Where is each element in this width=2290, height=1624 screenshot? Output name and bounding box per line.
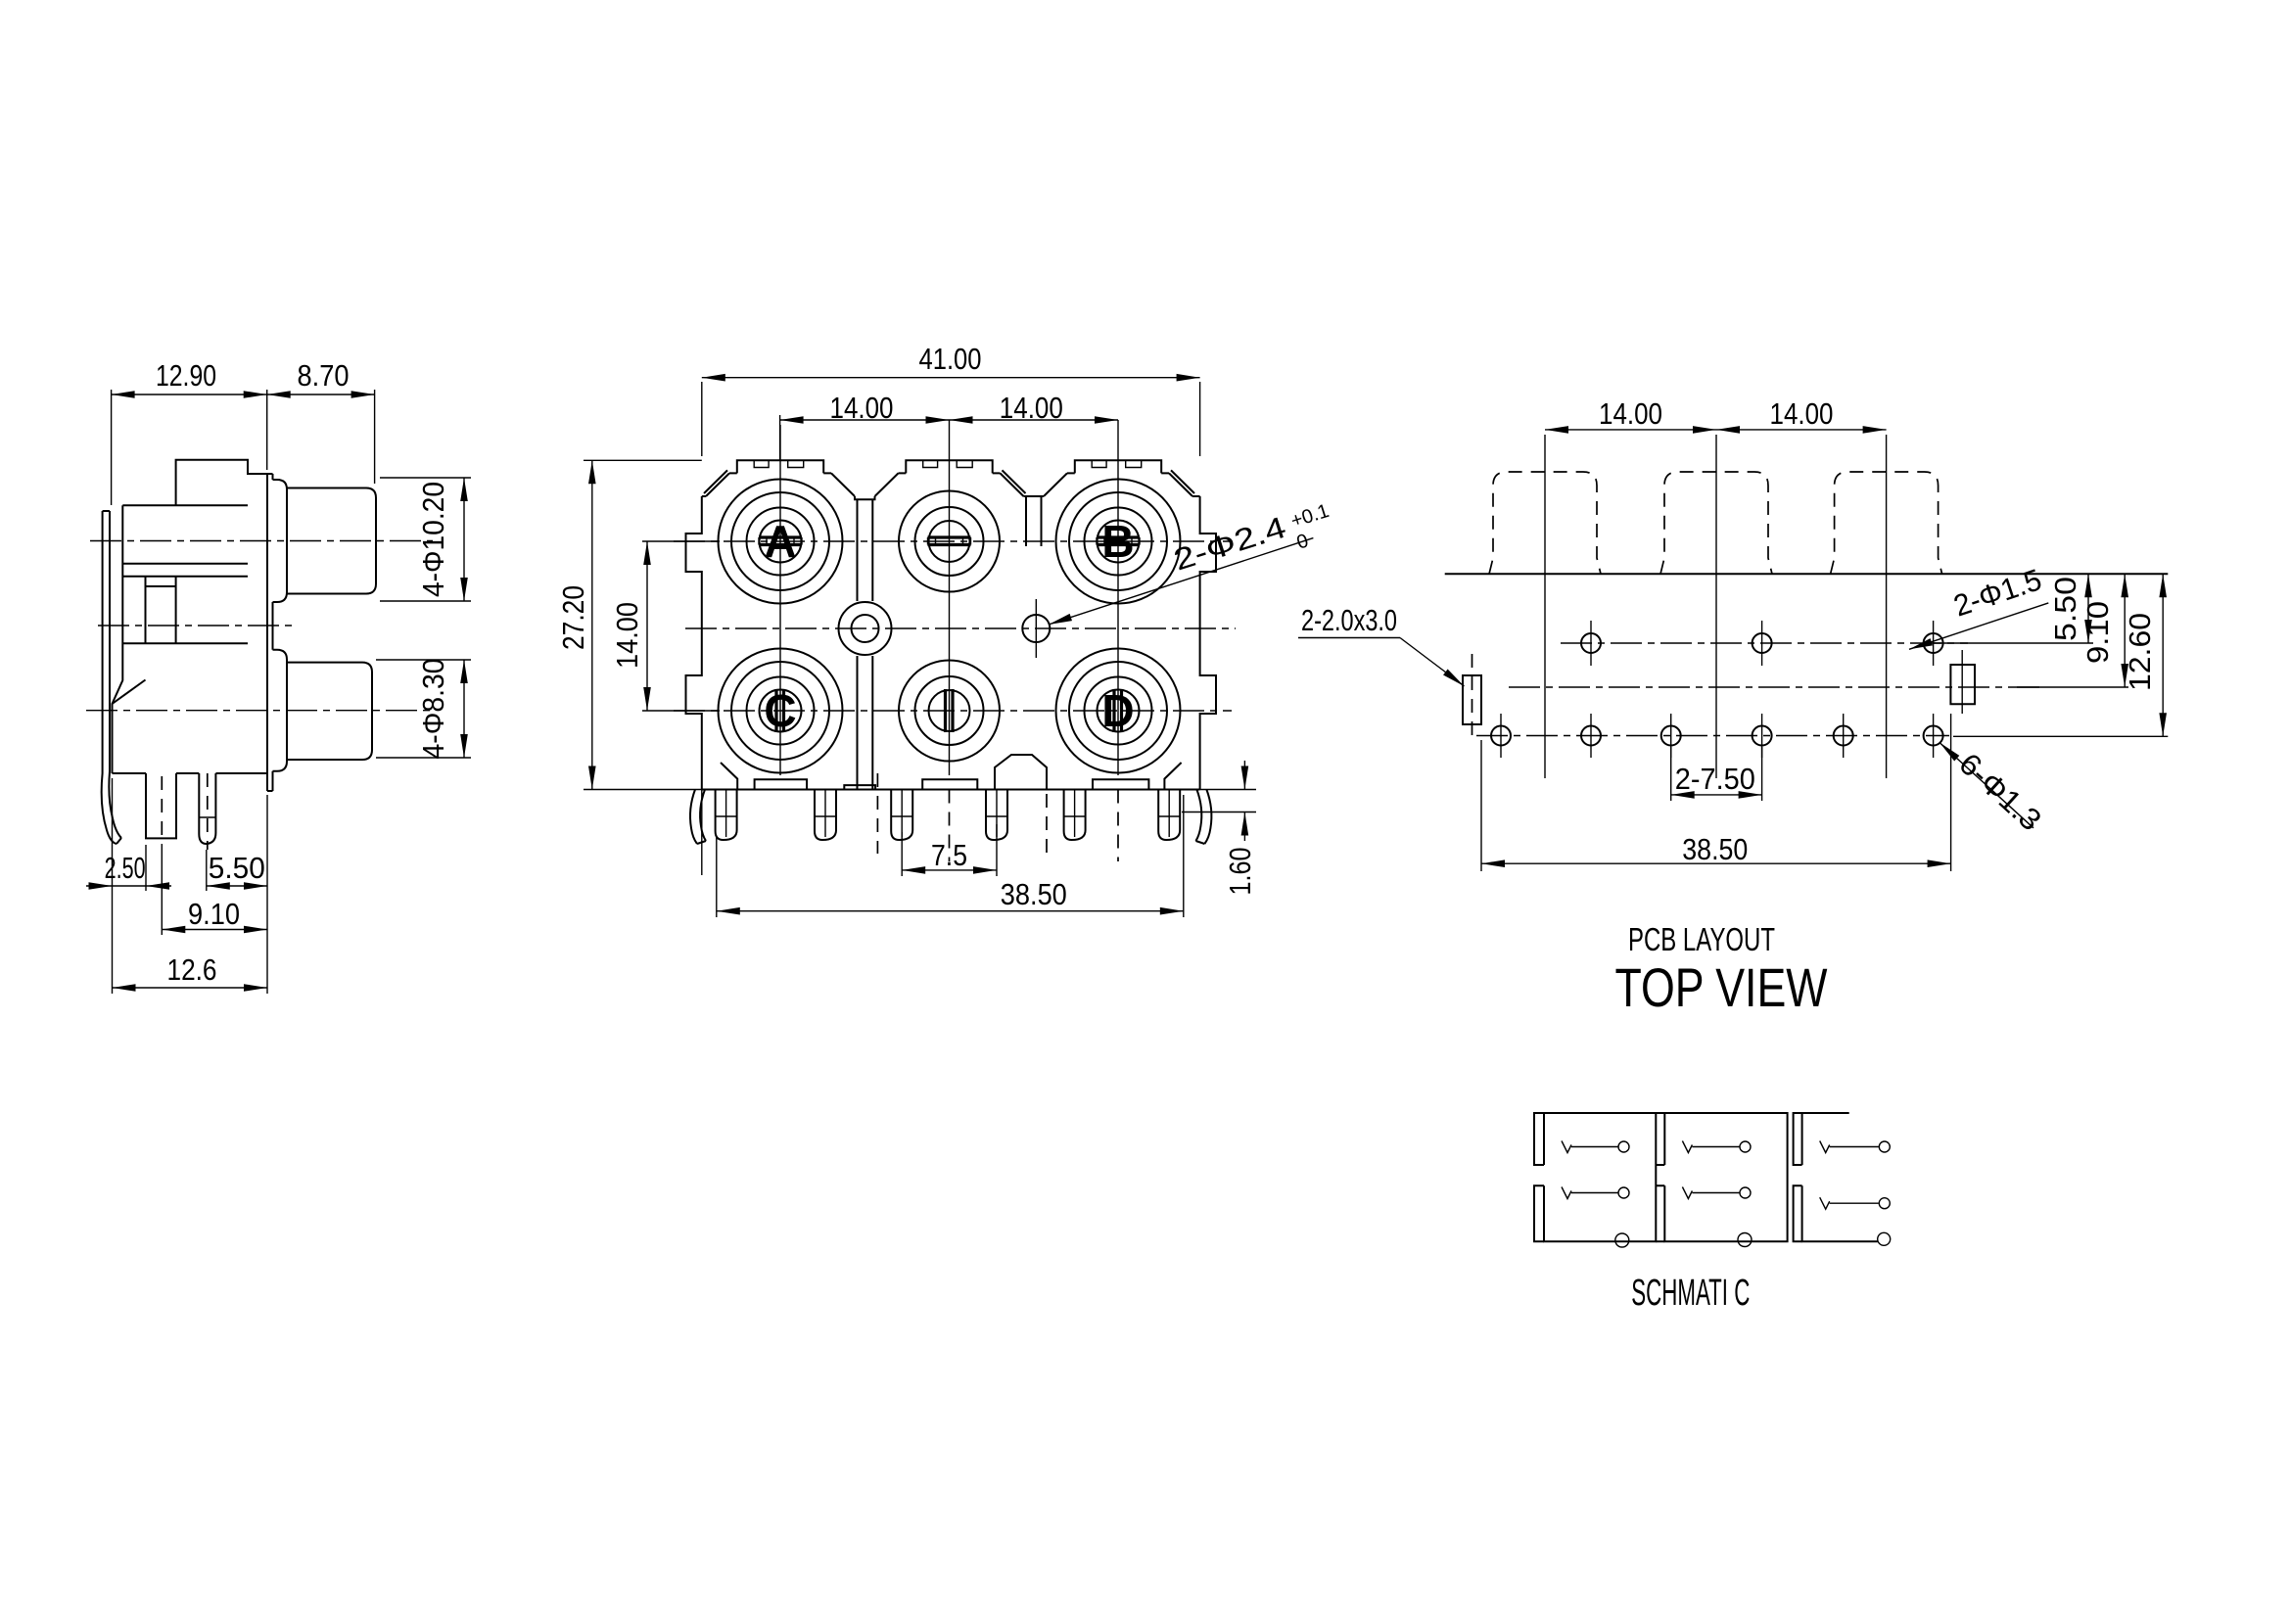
svg-text:SCHMATI C: SCHMATI C bbox=[1631, 1273, 1750, 1314]
svg-text:5.50: 5.50 bbox=[2048, 577, 2082, 641]
svg-text:14.00: 14.00 bbox=[610, 602, 644, 669]
svg-text:27.20: 27.20 bbox=[556, 585, 590, 650]
svg-text:2.50: 2.50 bbox=[105, 851, 146, 885]
svg-text:14.00: 14.00 bbox=[1599, 396, 1662, 431]
svg-text:9.10: 9.10 bbox=[2080, 601, 2115, 664]
svg-text:9.10: 9.10 bbox=[188, 897, 240, 931]
svg-text:12.6: 12.6 bbox=[167, 952, 217, 987]
svg-text:5.50: 5.50 bbox=[209, 851, 265, 885]
svg-text:41.00: 41.00 bbox=[919, 342, 982, 376]
svg-text:38.50: 38.50 bbox=[1001, 877, 1067, 911]
svg-text:2-7.50: 2-7.50 bbox=[1675, 762, 1755, 796]
svg-text:8.70: 8.70 bbox=[298, 358, 350, 393]
svg-text:38.50: 38.50 bbox=[1682, 832, 1748, 866]
svg-text:1.60: 1.60 bbox=[1223, 848, 1257, 896]
svg-text:14.00: 14.00 bbox=[830, 391, 894, 425]
svg-text:TOP VIEW: TOP VIEW bbox=[1615, 956, 1828, 1018]
svg-text:12.60: 12.60 bbox=[2123, 613, 2157, 691]
svg-text:4-Φ10.20: 4-Φ10.20 bbox=[416, 482, 450, 597]
svg-text:12.90: 12.90 bbox=[156, 358, 216, 393]
svg-text:4-Φ8.30: 4-Φ8.30 bbox=[416, 659, 450, 760]
svg-text:7.5: 7.5 bbox=[931, 838, 967, 872]
svg-text:14.00: 14.00 bbox=[1770, 396, 1834, 431]
svg-text:14.00: 14.00 bbox=[1000, 391, 1063, 425]
svg-text:2-2.0x3.0: 2-2.0x3.0 bbox=[1301, 603, 1397, 637]
svg-text:PCB LAYOUT: PCB LAYOUT bbox=[1628, 921, 1775, 957]
